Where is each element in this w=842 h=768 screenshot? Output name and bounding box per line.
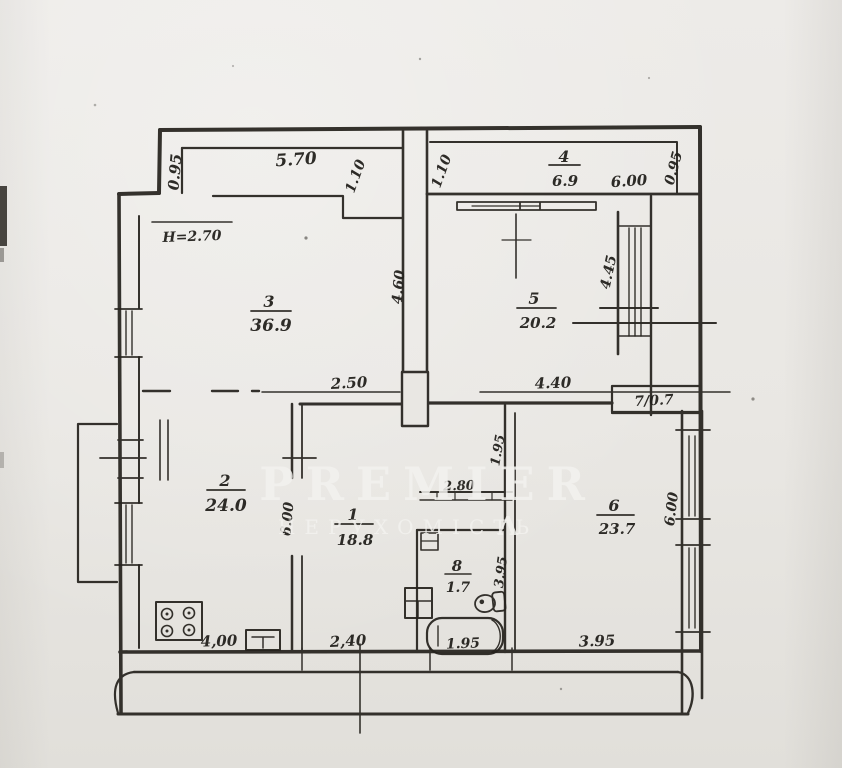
window-room5-loggia [629, 228, 641, 336]
dim-entry-depth: 0.95 [164, 153, 185, 191]
dim-entry-width: 5.70 [275, 149, 318, 172]
kitchen-sink-icon [246, 630, 280, 650]
room2-number: 2 [218, 471, 230, 490]
window-room6-lower [689, 548, 695, 628]
water-heater-icon [405, 588, 432, 618]
dim-hall-right: 4.40 [534, 373, 572, 392]
scan-artifacts [0, 58, 755, 690]
dim-room6-wall: 6.00 [662, 491, 682, 527]
dim-room4-width: 6.00 [610, 171, 648, 192]
window-room6-upper [689, 436, 695, 516]
dim-room6-bottom: 3.95 [578, 631, 615, 650]
scanned-floor-plan: 0.95 5.70 1.10 1.10 4 6.9 6.00 0.95 H=2.… [0, 0, 842, 768]
walls [78, 127, 730, 733]
dim-passage-right: 1.10 [429, 152, 456, 190]
dim-bath-depth: 3.95 [492, 555, 511, 588]
room6-area: 23.7 [598, 520, 636, 538]
window-room3-left [126, 311, 132, 355]
toilet-icon [474, 591, 506, 613]
room2-area: 24.0 [204, 496, 247, 516]
room6-number: 6 [608, 496, 619, 515]
watermark-logo-icon: Λ [497, 512, 519, 542]
dim-room2-bottom: 4,00 [200, 631, 238, 650]
room3-number: 3 [263, 292, 274, 311]
closet7-label: 7/0.7 [634, 392, 674, 410]
watermark-brand: PREMIER [259, 457, 597, 511]
room5-number: 5 [528, 289, 539, 308]
dim-bathtub-length: 1.95 [446, 635, 481, 652]
room3-area: 36.9 [250, 316, 292, 336]
floor-plan-drawing: 0.95 5.70 1.10 1.10 4 6.9 6.00 0.95 H=2.… [0, 0, 842, 768]
stove-icon [156, 602, 202, 640]
room8-area: 1.7 [446, 580, 471, 596]
room4-number: 4 [558, 147, 569, 166]
room8-number: 8 [452, 557, 463, 575]
dim-room3-wall: 4.60 [390, 269, 409, 305]
dim-hall-left: 2.50 [329, 373, 368, 393]
watermark: PREMIER НЕРУХОМІСТЬ Λ [259, 457, 597, 542]
dim-passage-left: 1.10 [343, 157, 370, 195]
room5-area: 20.2 [519, 314, 557, 332]
window-room2-balcony [126, 505, 132, 563]
dim-room1-bottom: 2,40 [328, 631, 367, 651]
room4-area: 6.9 [552, 172, 579, 190]
dim-room4-depth: 0.95 [662, 150, 686, 187]
ceiling-height-note: H=2.70 [161, 228, 222, 246]
